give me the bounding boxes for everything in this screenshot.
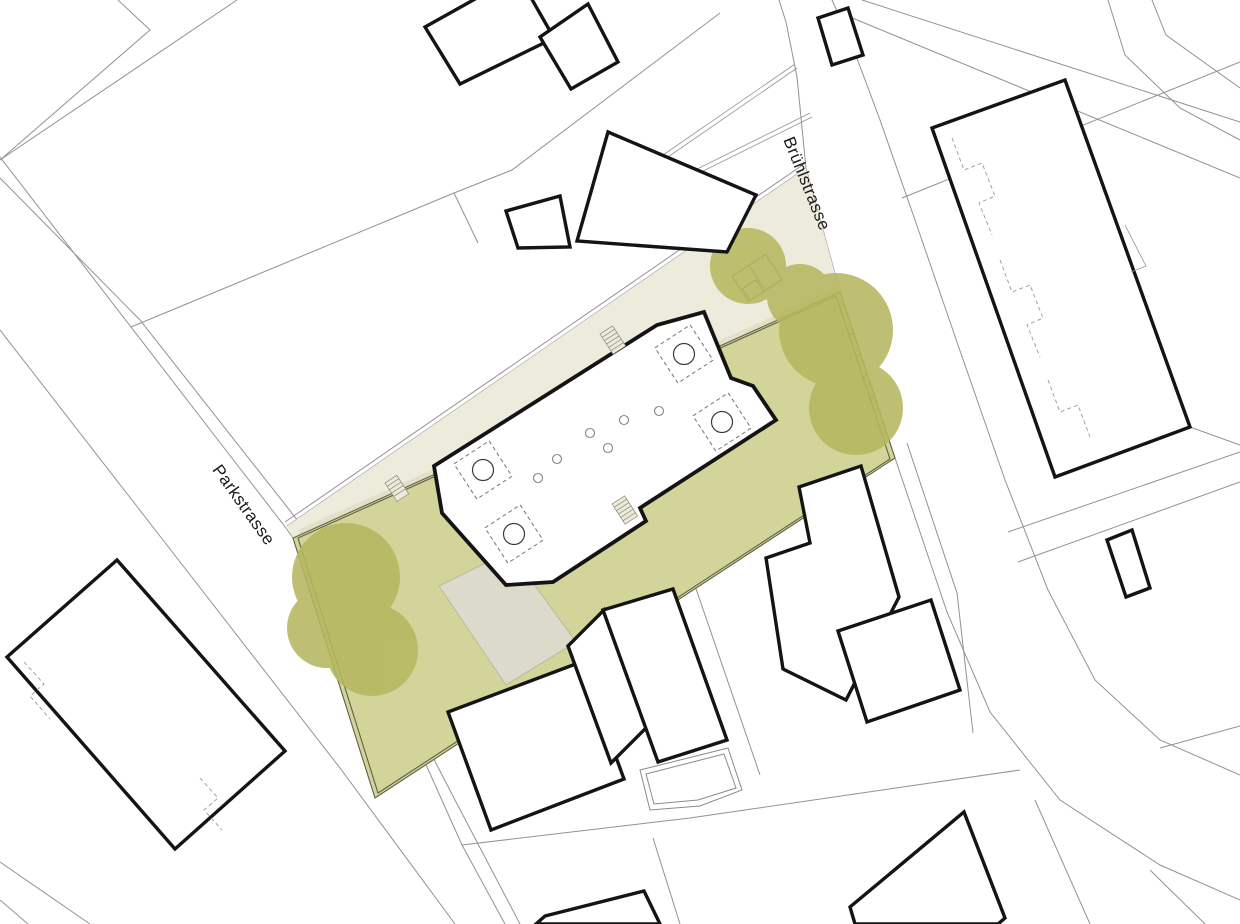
building-north-1-annex bbox=[540, 4, 618, 89]
parcel-fork-line-2 bbox=[0, 0, 237, 160]
junction-branch-2 bbox=[1150, 870, 1205, 924]
building-east-large bbox=[932, 80, 1190, 477]
south-parcel-line-east bbox=[1160, 726, 1240, 748]
building-bottom-2 bbox=[850, 812, 1005, 924]
building-north-2 bbox=[577, 132, 756, 252]
tree-canopy-east-3 bbox=[767, 264, 833, 330]
junction-branch-1 bbox=[1035, 800, 1090, 924]
driveway-line-1 bbox=[1008, 452, 1240, 532]
building-north-2-annex bbox=[506, 196, 570, 248]
building-east-small bbox=[1107, 530, 1150, 597]
site-plan-canvas: Brühlstrasse Parkstrasse bbox=[0, 0, 1240, 924]
mid-parcel-tee bbox=[454, 193, 478, 243]
site-plan-drawing bbox=[0, 0, 1240, 924]
tree-canopy-west-3 bbox=[287, 588, 367, 668]
building-west bbox=[7, 560, 285, 849]
corner-line-2 bbox=[0, 900, 28, 924]
south-parcel-divider bbox=[653, 838, 680, 924]
b4-parcel-corner-line bbox=[1190, 427, 1240, 445]
fence-1b bbox=[650, 64, 795, 164]
parcel-fork-line-1 bbox=[0, 0, 150, 160]
tree-canopy-east-2 bbox=[809, 361, 903, 455]
building-bottom-1 bbox=[536, 891, 660, 924]
top-right-street-2 bbox=[1152, 0, 1240, 88]
building-north-1 bbox=[425, 0, 554, 84]
corner-line-1 bbox=[0, 862, 90, 924]
building-northeast-small bbox=[818, 8, 863, 65]
fence-1a bbox=[652, 68, 797, 168]
